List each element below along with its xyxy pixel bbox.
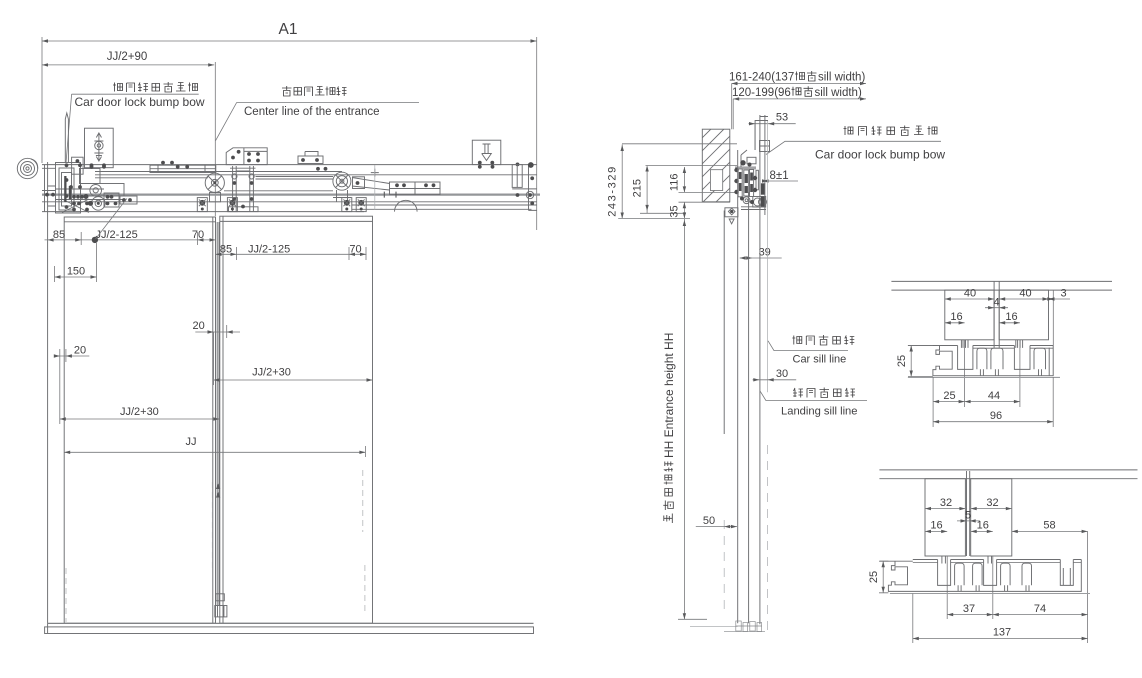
svg-text:243-329: 243-329 [607, 165, 619, 217]
svg-text:20: 20 [74, 345, 86, 357]
svg-text:JJ/2+30: JJ/2+30 [252, 367, 291, 379]
svg-text:25: 25 [896, 355, 908, 367]
svg-text:40: 40 [964, 287, 976, 299]
svg-text:70: 70 [349, 244, 361, 256]
svg-text:85: 85 [53, 229, 65, 241]
svg-text:Car door lock bump bow: Car door lock bump bow [815, 147, 945, 161]
svg-text:150: 150 [67, 266, 85, 278]
svg-text:A1: A1 [279, 21, 298, 38]
svg-text:sill width): sill width) [815, 87, 862, 99]
svg-text:3: 3 [1060, 287, 1066, 299]
svg-text:58: 58 [1043, 520, 1055, 532]
svg-text:35: 35 [669, 205, 681, 217]
svg-text:70: 70 [192, 229, 204, 241]
svg-text:44: 44 [988, 390, 1000, 402]
svg-text:50: 50 [703, 515, 715, 527]
svg-text:32: 32 [986, 497, 998, 509]
svg-text:16: 16 [930, 520, 942, 532]
svg-text:161-240(137: 161-240(137 [729, 72, 794, 84]
svg-text:Car door lock bump bow: Car door lock bump bow [75, 95, 205, 109]
svg-text:4: 4 [994, 297, 1000, 309]
svg-text:JJ/2+30: JJ/2+30 [120, 406, 159, 418]
svg-text:HH Entrance height HH: HH Entrance height HH [662, 333, 676, 458]
svg-text:137: 137 [993, 627, 1011, 639]
svg-text:25: 25 [943, 390, 955, 402]
svg-text:32: 32 [940, 497, 952, 509]
svg-text:16: 16 [1005, 311, 1017, 323]
svg-text:JJ: JJ [186, 436, 197, 448]
svg-text:Landing sill line: Landing sill line [781, 406, 858, 418]
svg-text:37: 37 [963, 603, 975, 615]
svg-text:30: 30 [776, 368, 788, 380]
svg-text:40: 40 [1019, 287, 1031, 299]
svg-text:74: 74 [1034, 603, 1046, 615]
svg-text:215: 215 [632, 179, 644, 197]
svg-text:25: 25 [868, 571, 880, 583]
svg-text:120-199(96: 120-199(96 [732, 87, 791, 99]
svg-text:20: 20 [192, 320, 204, 332]
svg-text:96: 96 [990, 410, 1002, 422]
svg-text:39: 39 [759, 247, 771, 259]
svg-text:16: 16 [950, 311, 962, 323]
svg-text:JJ/2+90: JJ/2+90 [107, 51, 148, 63]
svg-text:16: 16 [977, 520, 989, 532]
svg-text:JJ/2-125: JJ/2-125 [248, 244, 290, 256]
svg-text:sill width): sill width) [818, 72, 865, 84]
svg-text:5: 5 [965, 510, 971, 522]
svg-text:Car sill line: Car sill line [793, 354, 847, 366]
svg-text:8±1: 8±1 [770, 170, 789, 182]
svg-text:Center line of the entrance: Center line of the entrance [244, 106, 380, 118]
svg-text:116: 116 [669, 174, 681, 192]
svg-text:85: 85 [220, 244, 232, 256]
svg-text:53: 53 [776, 112, 788, 124]
